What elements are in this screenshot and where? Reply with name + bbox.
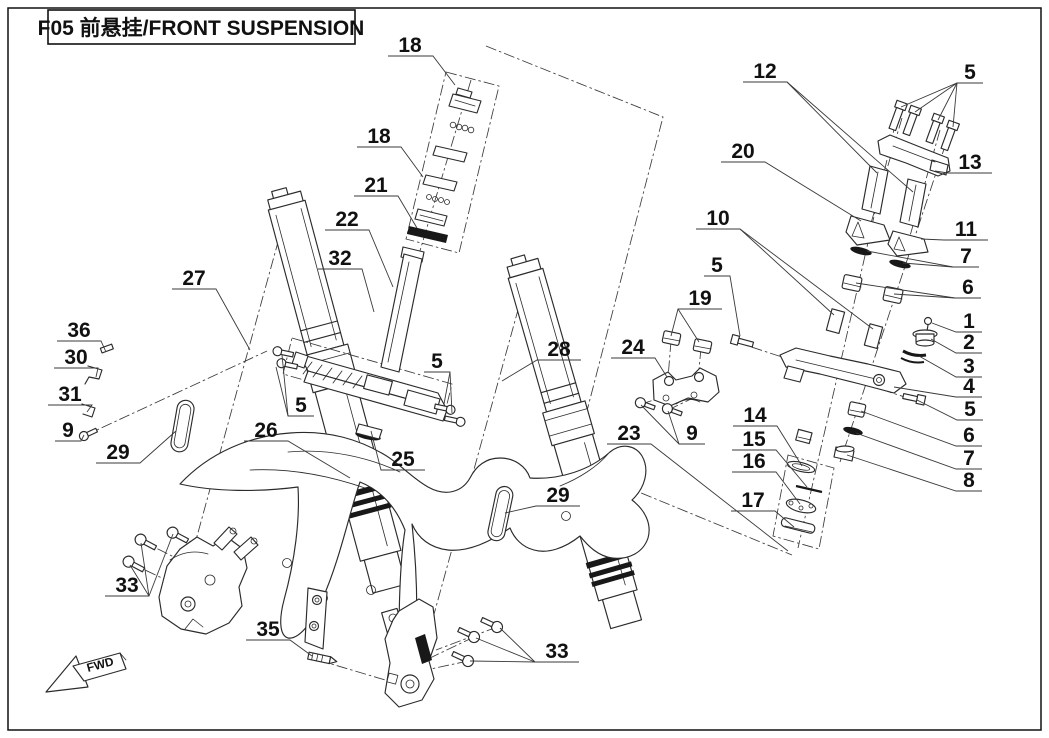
part-number-label: 17 (741, 489, 764, 512)
part-number-label: 36 (67, 319, 90, 342)
callout-leader-line (54, 368, 98, 377)
part-number-label: 14 (743, 404, 767, 427)
page-title: F05 前悬挂/FRONT SUSPENSION (38, 16, 365, 40)
front-suspension-diagram: F05 前悬挂/FRONT SUSPENSION (0, 0, 1049, 738)
part-number-label: 6 (963, 424, 975, 447)
riser-washer (888, 258, 911, 270)
part-number-label: 35 (256, 618, 280, 641)
callout-leader-line (915, 83, 957, 112)
part-number-label: 18 (367, 125, 391, 148)
stud-35 (308, 652, 338, 665)
part-number-label: 19 (688, 287, 711, 310)
callout-30-7: 30 (54, 346, 98, 377)
mount-bracket-24 (653, 368, 719, 406)
part-number-label: 18 (398, 34, 422, 57)
callout-6-26: 6 (856, 276, 981, 299)
part-number-label: 13 (958, 151, 981, 174)
part-number-label: 21 (364, 174, 388, 197)
part-number-label: 32 (328, 247, 351, 270)
callout-5-33: 5 (917, 398, 983, 421)
part-number-label: 11 (955, 218, 978, 241)
fork-spacer (423, 175, 457, 191)
part-number-label: 31 (58, 383, 82, 406)
riser-clamp-20 (846, 216, 890, 245)
stem-cap-2 (913, 330, 937, 346)
stem-washers-3 (901, 351, 926, 363)
rubber-mount-19 (662, 330, 712, 353)
part-number-label: 24 (621, 336, 645, 359)
title-box: F05 前悬挂/FRONT SUSPENSION (38, 10, 365, 44)
head-locknut (796, 429, 812, 443)
part-number-label: 7 (963, 447, 975, 470)
callout-leader-line (476, 638, 535, 662)
bearing-16 (785, 497, 817, 516)
handlebar-clamp-bar (878, 135, 950, 176)
steering-head-parts (796, 401, 866, 461)
part-number-label: 33 (115, 574, 138, 597)
callout-leader-line (721, 162, 861, 221)
callout-leader-line (671, 309, 722, 336)
spring-coil-stack (450, 122, 474, 133)
part-number-label: 5 (295, 394, 307, 417)
callout-29-10: 29 (96, 431, 176, 464)
mount-bracket-assembly (634, 330, 719, 418)
part-number-label: 20 (731, 140, 754, 163)
part-number-label: 27 (182, 267, 205, 290)
callout-18-1: 18 (357, 125, 423, 177)
callout-24-37: 24 (611, 336, 667, 377)
callout-leader-line (172, 289, 250, 350)
callout-leader-line (894, 294, 955, 298)
spring-coil-stack (427, 195, 450, 205)
head-nut-8 (834, 446, 854, 461)
sensor-plate (305, 588, 327, 649)
part-number-label: 28 (547, 338, 571, 361)
callout-2-30: 2 (931, 331, 982, 354)
part-number-label: 10 (706, 207, 729, 230)
riser-spacer (826, 309, 844, 334)
axle-clamp-right (308, 599, 505, 707)
callout-leader-line (388, 56, 455, 85)
part-number-label: 6 (962, 276, 974, 299)
clip-bolt-9 (78, 426, 99, 442)
part-number-label: 33 (545, 640, 568, 663)
part-number-label: 5 (964, 61, 976, 84)
parts-diagram-page: F05 前悬挂/FRONT SUSPENSION (0, 0, 1049, 738)
handlebar-riser-assembly (826, 100, 959, 348)
callout-33-18: 33 (470, 628, 579, 663)
part-number-label: 23 (617, 422, 640, 445)
callout-leader-line (611, 358, 667, 377)
part-number-label: 5 (964, 398, 976, 421)
clamp-pin-36 (100, 344, 113, 353)
fork-spacer (433, 146, 467, 162)
callout-leader-line (678, 309, 699, 342)
callout-27-5: 27 (172, 267, 250, 350)
part-number-label: 16 (742, 450, 765, 473)
part-number-label: 1 (963, 310, 975, 333)
upper-triple-clamp (780, 348, 906, 393)
callout-leader-line (847, 455, 982, 491)
callout-1-29: 1 (932, 310, 982, 333)
fork-washer (415, 209, 447, 226)
fork-cap (449, 88, 481, 113)
callout-11-24: 11 (921, 218, 988, 241)
part-number-label: 15 (742, 428, 766, 451)
fwd-arrow: FWD (46, 653, 126, 692)
steering-stem (381, 247, 424, 372)
part-number-label: 5 (431, 350, 443, 373)
head-bushing-6 (848, 401, 866, 417)
part-number-label: 22 (335, 208, 358, 231)
part-number-label: 5 (711, 254, 723, 277)
part-number-label: 29 (106, 441, 129, 464)
riser-spacer (864, 324, 882, 349)
snap-ring-15 (796, 486, 822, 492)
part-number-label: 9 (686, 422, 698, 445)
part-number-label: 12 (753, 60, 776, 83)
callout-leader-line (357, 147, 423, 177)
callout-leader-line (246, 640, 312, 656)
callout-leader-line (668, 411, 679, 444)
part-number-label: 26 (254, 419, 277, 442)
part-number-label: 7 (960, 245, 972, 268)
callout-31-8: 31 (48, 383, 92, 412)
callout-20-21: 20 (721, 140, 861, 221)
callout-leader-line (901, 83, 983, 107)
reflector-left (170, 399, 196, 453)
part-number-label: 2 (963, 331, 975, 354)
stem-bolt-1 (925, 318, 932, 332)
part-number-label: 25 (391, 448, 415, 471)
callout-21-2: 21 (354, 174, 417, 228)
callout-leader-line (470, 661, 535, 662)
head-washer-7 (842, 425, 863, 437)
riser-clamp-11 (888, 231, 928, 256)
fork-internals-box (406, 72, 499, 253)
part-number-label: 4 (963, 375, 975, 398)
steering-bearing-box (773, 455, 834, 549)
callout-leader-line (48, 405, 92, 412)
part-number-label: 29 (546, 484, 569, 507)
callout-leader-line (743, 82, 877, 173)
part-number-label: 30 (64, 346, 87, 369)
callout-18-0: 18 (388, 34, 455, 85)
callout-leader-line (354, 196, 417, 228)
part-number-label: 8 (963, 469, 975, 492)
callout-8-36: 8 (847, 455, 982, 492)
part-number-label: 9 (62, 419, 74, 442)
